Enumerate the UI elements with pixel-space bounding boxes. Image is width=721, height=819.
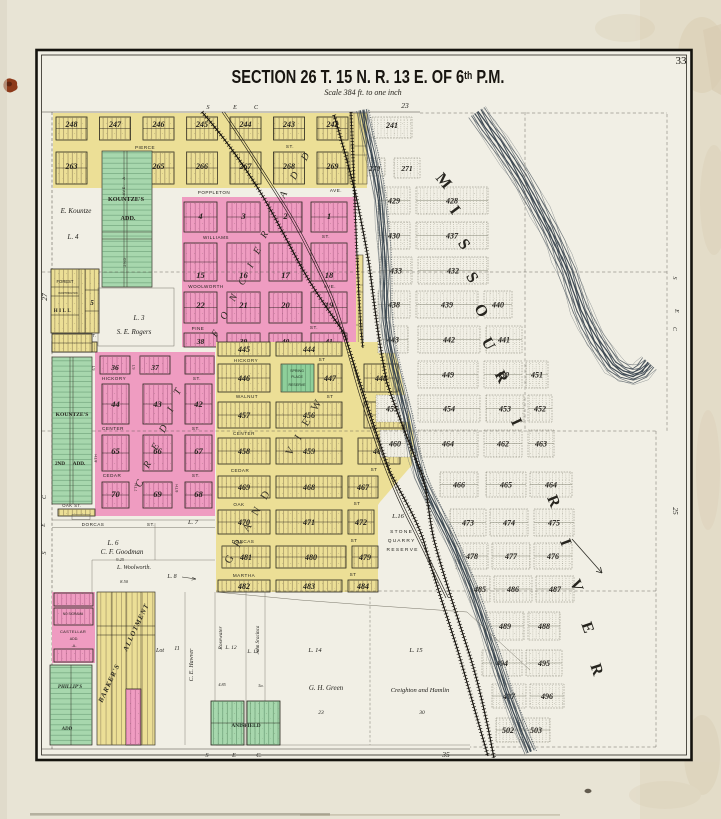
svg-text:S T O N E: S T O N E bbox=[390, 529, 412, 535]
svg-text:465: 465 bbox=[499, 481, 512, 490]
svg-text:4.85: 4.85 bbox=[218, 682, 225, 687]
svg-text:486: 486 bbox=[506, 585, 519, 594]
svg-text:36: 36 bbox=[110, 363, 119, 372]
svg-text:E: E bbox=[232, 105, 237, 111]
svg-text:5: 5 bbox=[90, 299, 94, 307]
svg-text:487: 487 bbox=[548, 585, 562, 594]
svg-text:OAK: OAK bbox=[233, 502, 245, 507]
svg-text:ST: ST bbox=[132, 364, 136, 369]
svg-text:449: 449 bbox=[441, 371, 454, 380]
svg-text:AVE.: AVE. bbox=[121, 185, 126, 196]
svg-text:460: 460 bbox=[388, 440, 401, 449]
svg-text:PLACE: PLACE bbox=[291, 375, 303, 379]
svg-text:479: 479 bbox=[358, 553, 371, 562]
svg-text:23: 23 bbox=[401, 101, 409, 110]
svg-text:503: 503 bbox=[530, 726, 542, 735]
svg-text:ST.: ST. bbox=[322, 234, 330, 239]
svg-text:DORCAS: DORCAS bbox=[82, 522, 105, 527]
svg-text:ADD.: ADD. bbox=[70, 637, 79, 641]
svg-text:476: 476 bbox=[546, 552, 559, 561]
svg-text:CENTER: CENTER bbox=[233, 431, 255, 436]
svg-text:27: 27 bbox=[40, 293, 49, 301]
svg-text:ADD: ADD bbox=[61, 727, 73, 732]
svg-text:15: 15 bbox=[196, 270, 205, 280]
svg-text:466: 466 bbox=[452, 481, 465, 490]
svg-text:E. Kountze: E. Kountze bbox=[60, 207, 92, 215]
svg-text:FOREST: FOREST bbox=[57, 279, 74, 284]
svg-text:WOOLWORTH: WOOLWORTH bbox=[188, 284, 223, 289]
svg-text:266: 266 bbox=[195, 162, 208, 171]
svg-text:265: 265 bbox=[152, 162, 165, 171]
svg-text:Creighton and Hamlin: Creighton and Hamlin bbox=[391, 687, 450, 694]
svg-text:HICKORY: HICKORY bbox=[234, 358, 258, 363]
svg-text:L. 8: L. 8 bbox=[166, 574, 176, 580]
svg-text:469: 469 bbox=[237, 483, 250, 492]
svg-text:CEDAR: CEDAR bbox=[231, 468, 250, 473]
svg-text:ST: ST bbox=[350, 572, 357, 577]
svg-text:KOUNTZE'S: KOUNTZE'S bbox=[108, 196, 145, 203]
svg-text:268: 268 bbox=[282, 162, 295, 171]
svg-text:246: 246 bbox=[152, 120, 165, 129]
svg-text:CEDAR: CEDAR bbox=[103, 473, 122, 478]
svg-text:42: 42 bbox=[193, 399, 203, 409]
svg-text:CENTER: CENTER bbox=[102, 426, 124, 431]
svg-text:495: 495 bbox=[537, 659, 550, 668]
svg-text:POPPLETON: POPPLETON bbox=[198, 190, 231, 195]
svg-text:496: 496 bbox=[540, 692, 553, 701]
svg-text:Scale 384 ft. to one inch: Scale 384 ft. to one inch bbox=[324, 88, 401, 97]
svg-text:269: 269 bbox=[326, 162, 339, 171]
svg-text:22: 22 bbox=[195, 300, 205, 310]
svg-text:440: 440 bbox=[491, 301, 504, 310]
svg-text:459: 459 bbox=[302, 447, 315, 456]
svg-text:263: 263 bbox=[65, 162, 78, 171]
svg-text:433: 433 bbox=[389, 267, 402, 276]
svg-text:L. 15: L. 15 bbox=[408, 647, 423, 654]
svg-text:30: 30 bbox=[418, 710, 425, 716]
svg-text:ST.: ST. bbox=[193, 376, 201, 381]
svg-text:442: 442 bbox=[442, 336, 455, 345]
svg-text:MARTHA: MARTHA bbox=[233, 573, 256, 578]
svg-text:33: 33 bbox=[676, 55, 688, 67]
svg-text:ST: ST bbox=[319, 357, 326, 362]
svg-text:488: 488 bbox=[537, 622, 550, 631]
svg-text:C. E. Hawver: C. E. Hawver bbox=[189, 648, 195, 681]
svg-text:5a.: 5a. bbox=[258, 683, 263, 688]
svg-text:8.50: 8.50 bbox=[120, 579, 129, 584]
svg-text:68: 68 bbox=[194, 489, 203, 499]
svg-text:243: 243 bbox=[282, 120, 295, 129]
svg-text:245: 245 bbox=[195, 120, 208, 129]
svg-text:RESERVE: RESERVE bbox=[288, 383, 306, 387]
svg-text:KOUNTZE'S: KOUNTZE'S bbox=[56, 412, 89, 418]
svg-text:ST: ST bbox=[371, 467, 378, 472]
svg-text:S: S bbox=[42, 552, 48, 555]
svg-text:ST.: ST. bbox=[192, 426, 200, 431]
svg-text:474: 474 bbox=[502, 519, 515, 528]
svg-text:483: 483 bbox=[302, 582, 315, 591]
svg-text:20: 20 bbox=[280, 300, 290, 310]
svg-text:Rosewater: Rosewater bbox=[218, 626, 224, 651]
svg-text:ADD.: ADD. bbox=[121, 215, 136, 222]
svg-text:WALNUT: WALNUT bbox=[236, 394, 258, 399]
svg-text:457: 457 bbox=[237, 411, 251, 420]
svg-text:464: 464 bbox=[441, 440, 454, 449]
svg-text:S: S bbox=[671, 277, 677, 280]
svg-text:ANISFIELD: ANISFIELD bbox=[231, 723, 260, 729]
svg-text:484: 484 bbox=[356, 582, 369, 591]
svg-text:ADD.: ADD. bbox=[73, 461, 86, 467]
svg-text:271: 271 bbox=[400, 164, 412, 173]
svg-text:ST: ST bbox=[351, 538, 358, 543]
svg-text:446: 446 bbox=[237, 374, 250, 383]
svg-text:L.16: L.16 bbox=[391, 513, 404, 520]
svg-text:G. H. Green: G. H. Green bbox=[309, 684, 344, 692]
svg-text:SPRING: SPRING bbox=[290, 369, 304, 373]
svg-text:PIERCE: PIERCE bbox=[135, 145, 155, 150]
svg-text:451: 451 bbox=[530, 371, 543, 380]
svg-text:444: 444 bbox=[302, 345, 315, 354]
svg-text:-A-: -A- bbox=[72, 644, 78, 648]
svg-text:17: 17 bbox=[281, 270, 290, 280]
svg-text:472: 472 bbox=[354, 518, 367, 527]
svg-text:452: 452 bbox=[533, 405, 546, 414]
svg-text:1: 1 bbox=[327, 211, 331, 221]
svg-text:18: 18 bbox=[325, 270, 334, 280]
svg-text:ST.: ST. bbox=[310, 325, 318, 330]
svg-text:462: 462 bbox=[496, 440, 509, 449]
svg-text:21: 21 bbox=[238, 300, 248, 310]
svg-text:L. 14: L. 14 bbox=[307, 647, 322, 654]
svg-text:NO SIGRAMA: NO SIGRAMA bbox=[63, 612, 84, 616]
svg-text:SECTION 26 T. 15 N. R. 13 E. O: SECTION 26 T. 15 N. R. 13 E. OF 6th P.M. bbox=[232, 66, 505, 87]
svg-text:ST: ST bbox=[354, 501, 361, 506]
svg-text:4: 4 bbox=[197, 211, 202, 221]
svg-text:473: 473 bbox=[461, 519, 474, 528]
svg-text:241: 241 bbox=[385, 121, 398, 130]
svg-text:9.25: 9.25 bbox=[116, 557, 125, 562]
svg-text:E: E bbox=[231, 753, 236, 759]
svg-text:247: 247 bbox=[108, 120, 122, 129]
svg-text:A: A bbox=[121, 176, 126, 179]
svg-text:478: 478 bbox=[465, 552, 478, 561]
svg-text:E: E bbox=[41, 523, 47, 528]
svg-text:477: 477 bbox=[504, 552, 518, 561]
svg-text:L. Woolworth.: L. Woolworth. bbox=[116, 565, 151, 571]
svg-text:John Sracinca: John Sracinca bbox=[256, 625, 261, 654]
svg-text:WORTHINGTON: WORTHINGTON bbox=[58, 292, 77, 295]
svg-text:454: 454 bbox=[442, 405, 455, 414]
svg-text:439: 439 bbox=[440, 301, 453, 310]
svg-text:463: 463 bbox=[534, 440, 547, 449]
svg-text:L. 6: L. 6 bbox=[107, 539, 119, 547]
svg-text:L. 3: L. 3 bbox=[133, 314, 145, 322]
svg-text:445: 445 bbox=[237, 345, 250, 354]
svg-text:ST: ST bbox=[92, 365, 96, 370]
svg-text:ST.: ST. bbox=[286, 144, 294, 149]
svg-text:464: 464 bbox=[544, 481, 557, 490]
svg-text:HICKORY: HICKORY bbox=[102, 376, 126, 381]
svg-text:C. F. Goodman: C. F. Goodman bbox=[101, 548, 144, 556]
svg-text:Q U A R R Y: Q U A R R Y bbox=[388, 538, 415, 544]
svg-text:468: 468 bbox=[302, 483, 315, 492]
svg-text:HILL: HILL bbox=[54, 309, 73, 314]
svg-text:471: 471 bbox=[302, 518, 315, 527]
svg-text:Lot: Lot bbox=[155, 648, 164, 654]
svg-text:502: 502 bbox=[502, 726, 514, 735]
svg-text:PHILLIP'S: PHILLIP'S bbox=[58, 685, 82, 690]
svg-text:441: 441 bbox=[497, 336, 510, 345]
svg-text:38: 38 bbox=[196, 337, 205, 346]
svg-text:ST.: ST. bbox=[192, 473, 200, 478]
svg-text:2ND: 2ND bbox=[122, 257, 127, 267]
svg-text:43: 43 bbox=[152, 399, 162, 409]
svg-text:2ND: 2ND bbox=[55, 461, 65, 467]
svg-text:L. 4: L. 4 bbox=[67, 233, 79, 241]
svg-text:6TH: 6TH bbox=[175, 484, 179, 493]
svg-text:E: E bbox=[673, 308, 679, 313]
svg-text:453: 453 bbox=[498, 405, 511, 414]
svg-text:ST.: ST. bbox=[147, 522, 155, 527]
svg-text:481: 481 bbox=[239, 553, 252, 562]
svg-text:429: 429 bbox=[387, 197, 400, 206]
svg-text:248: 248 bbox=[65, 120, 78, 129]
svg-text:70: 70 bbox=[111, 489, 120, 499]
svg-text:65: 65 bbox=[111, 446, 120, 456]
svg-text:C.: C. bbox=[256, 753, 262, 759]
svg-text:475: 475 bbox=[547, 519, 560, 528]
svg-text:CASTELLAR: CASTELLAR bbox=[60, 629, 86, 634]
svg-text:25: 25 bbox=[671, 507, 680, 515]
svg-text:OAK ST.: OAK ST. bbox=[62, 503, 82, 508]
svg-text:44: 44 bbox=[110, 399, 120, 409]
svg-text:458: 458 bbox=[237, 447, 250, 456]
svg-text:437: 437 bbox=[445, 232, 459, 241]
svg-text:3: 3 bbox=[240, 211, 246, 221]
svg-text:PINE: PINE bbox=[192, 326, 205, 331]
svg-text:8TH: 8TH bbox=[94, 454, 98, 463]
svg-text:R E S E R V E: R E S E R V E bbox=[387, 547, 418, 553]
svg-text:S: S bbox=[206, 753, 209, 759]
svg-text:37: 37 bbox=[150, 363, 159, 372]
svg-text:WILLIAMS: WILLIAMS bbox=[203, 235, 229, 240]
svg-text:S. E. Rogers: S. E. Rogers bbox=[117, 328, 152, 336]
svg-text:67: 67 bbox=[194, 446, 203, 456]
svg-text:35: 35 bbox=[441, 750, 450, 759]
svg-text:467: 467 bbox=[356, 483, 370, 492]
svg-text:432: 432 bbox=[446, 267, 459, 276]
svg-text:482: 482 bbox=[237, 582, 250, 591]
svg-text:447: 447 bbox=[323, 374, 337, 383]
svg-text:11: 11 bbox=[174, 646, 180, 652]
svg-text:489: 489 bbox=[498, 622, 511, 631]
svg-text:438: 438 bbox=[387, 301, 400, 310]
svg-text:480: 480 bbox=[304, 553, 317, 562]
svg-text:23: 23 bbox=[318, 710, 324, 716]
svg-text:S: S bbox=[207, 105, 210, 111]
svg-text:AVE.: AVE. bbox=[330, 188, 342, 193]
svg-text:L. 12: L. 12 bbox=[224, 645, 237, 651]
svg-text:244: 244 bbox=[239, 120, 252, 129]
svg-text:69: 69 bbox=[153, 489, 162, 499]
svg-text:ST: ST bbox=[327, 394, 334, 399]
